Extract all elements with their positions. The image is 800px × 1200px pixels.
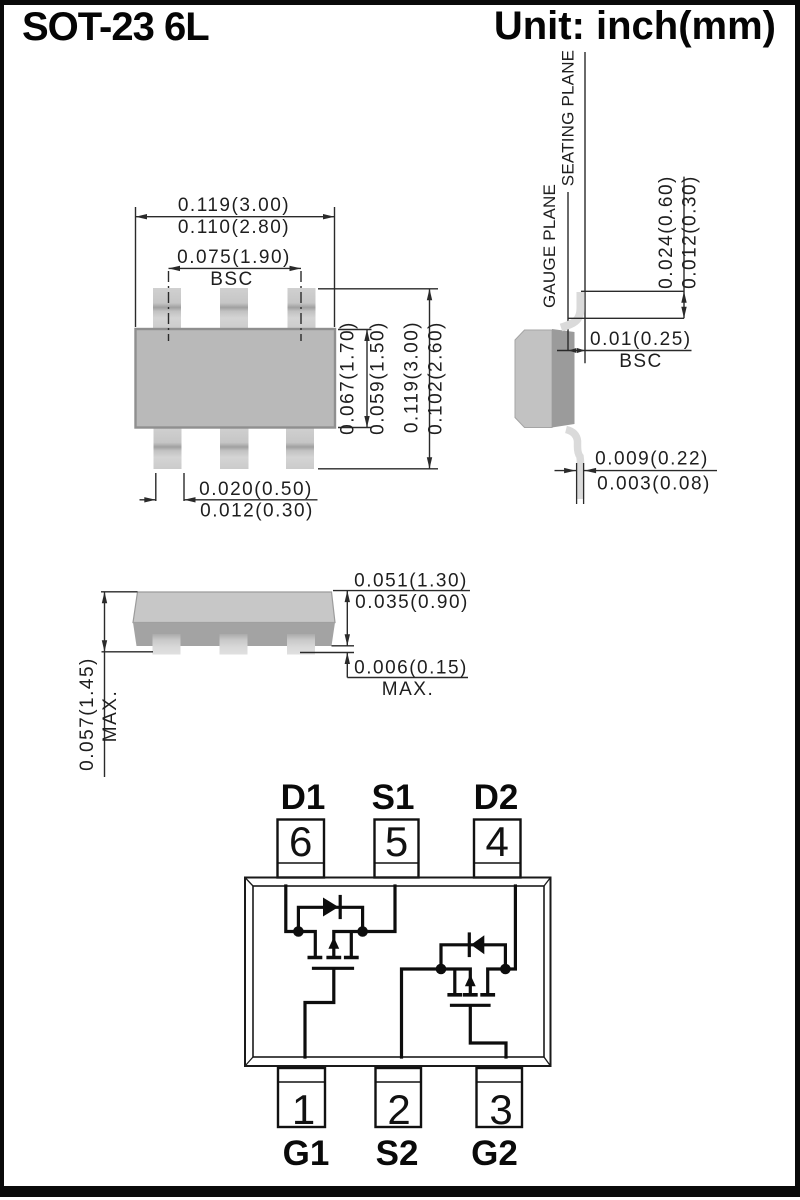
svg-text:BSC: BSC	[619, 351, 663, 372]
svg-text:0.01(0.25): 0.01(0.25)	[590, 329, 692, 350]
svg-text:0.003(0.08): 0.003(0.08)	[597, 474, 711, 495]
svg-text:3: 3	[489, 1086, 512, 1133]
svg-text:2: 2	[387, 1086, 410, 1133]
svg-text:GAUGE PLANE: GAUGE PLANE	[540, 184, 559, 308]
svg-text:0.119(3.00): 0.119(3.00)	[178, 195, 290, 216]
svg-text:SEATING PLANE: SEATING PLANE	[559, 50, 578, 186]
svg-text:0.009(0.22): 0.009(0.22)	[595, 449, 709, 470]
svg-text:Unit: inch(mm): Unit: inch(mm)	[494, 4, 776, 48]
svg-text:S1: S1	[372, 778, 415, 817]
svg-text:0.051(1.30): 0.051(1.30)	[354, 571, 468, 592]
svg-text:BSC: BSC	[210, 269, 254, 290]
svg-text:MAX.: MAX.	[100, 690, 121, 742]
svg-text:D1: D1	[281, 778, 326, 817]
svg-text:5: 5	[385, 818, 408, 865]
svg-text:0.012(0.30): 0.012(0.30)	[680, 175, 701, 289]
svg-text:0.035(0.90): 0.035(0.90)	[355, 592, 469, 613]
svg-text:0.059(1.50): 0.059(1.50)	[368, 321, 389, 435]
svg-text:6: 6	[289, 818, 312, 865]
svg-text:0.075(1.90): 0.075(1.90)	[177, 247, 291, 268]
svg-text:0.119(3.00): 0.119(3.00)	[402, 321, 423, 433]
svg-text:D2: D2	[474, 778, 519, 817]
svg-text:0.067(1.70): 0.067(1.70)	[338, 321, 359, 435]
svg-text:0.012(0.30): 0.012(0.30)	[200, 501, 314, 522]
svg-text:S2: S2	[376, 1134, 419, 1173]
svg-text:G2: G2	[471, 1134, 518, 1173]
svg-text:0.006(0.15): 0.006(0.15)	[354, 658, 468, 679]
svg-text:0.057(1.45): 0.057(1.45)	[77, 657, 98, 771]
svg-text:0.020(0.50): 0.020(0.50)	[199, 479, 313, 500]
svg-text:0.102(2.60): 0.102(2.60)	[426, 321, 447, 435]
svg-text:0.024(0.60): 0.024(0.60)	[656, 175, 677, 289]
svg-text:MAX.: MAX.	[382, 679, 434, 700]
svg-text:1: 1	[292, 1086, 315, 1133]
svg-text:G1: G1	[283, 1134, 330, 1173]
svg-text:0.110(2.80): 0.110(2.80)	[178, 217, 290, 238]
svg-text:4: 4	[486, 818, 509, 865]
svg-text:SOT-23 6L: SOT-23 6L	[22, 5, 209, 49]
